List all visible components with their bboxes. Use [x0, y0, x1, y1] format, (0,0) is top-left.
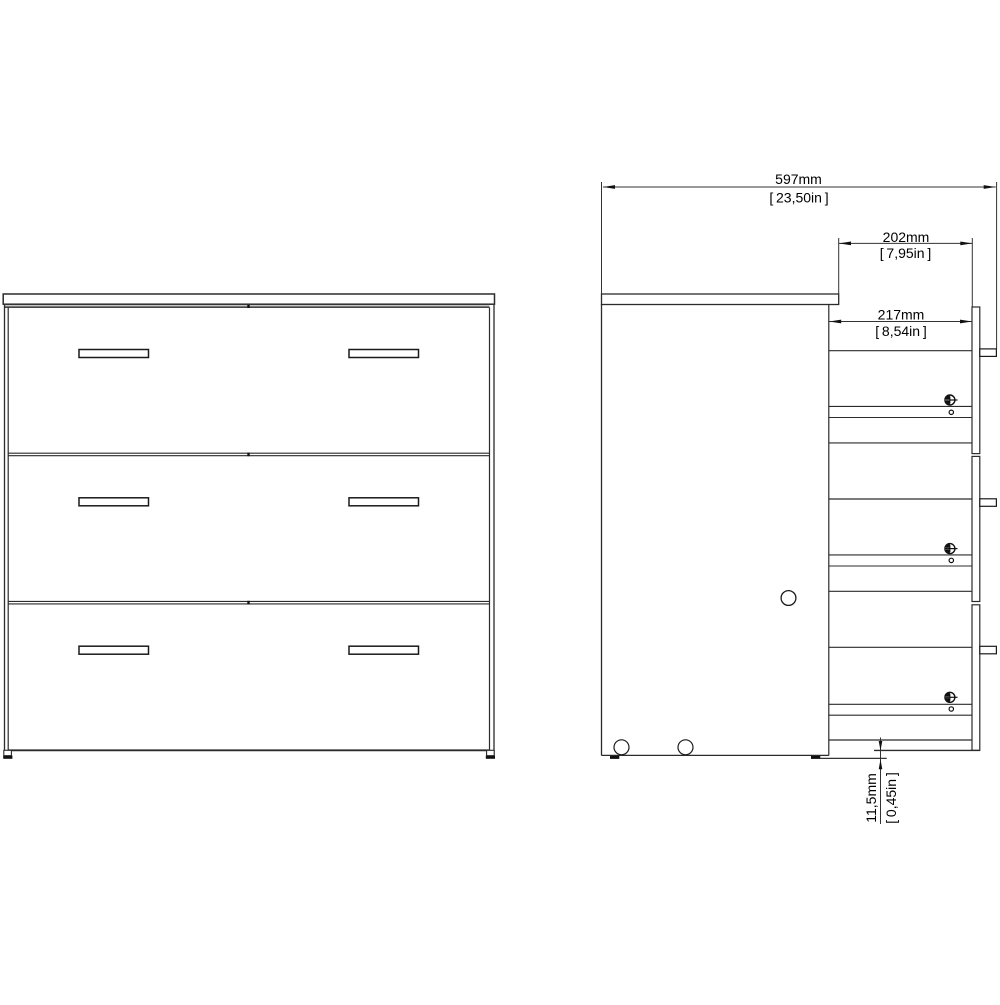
- svg-text:[ 0,45in ]: [ 0,45in ]: [883, 772, 899, 824]
- svg-text:217mm: 217mm: [878, 306, 925, 322]
- svg-text:11,5mm: 11,5mm: [863, 773, 879, 823]
- svg-text:[ 7,95in ]: [ 7,95in ]: [880, 245, 932, 261]
- svg-text:[ 8,54in ]: [ 8,54in ]: [875, 323, 927, 339]
- svg-text:202mm: 202mm: [883, 229, 930, 245]
- svg-text:[ 23,50in ]: [ 23,50in ]: [769, 190, 828, 206]
- svg-text:597mm: 597mm: [775, 171, 822, 187]
